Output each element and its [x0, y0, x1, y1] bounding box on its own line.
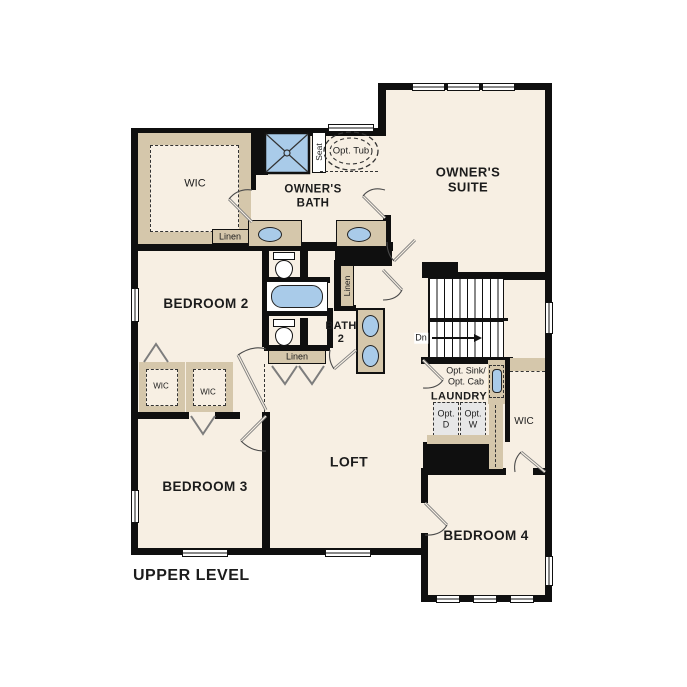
toilet — [273, 252, 295, 260]
linen-owners-label: Linen — [219, 232, 241, 243]
bedroom4-wic-shelf-edge — [510, 371, 545, 372]
door-bifold-hall-linen — [270, 364, 326, 388]
floor-bedroom4 — [421, 550, 550, 596]
owners-bath-label: OWNER'S BATH — [284, 183, 341, 210]
owners-wic-label: WIC — [184, 178, 205, 191]
wall — [421, 533, 428, 600]
linen-bath2-label: Linen — [342, 276, 352, 297]
wall — [131, 412, 189, 419]
wall — [545, 83, 552, 600]
door-bedroom4 — [421, 499, 453, 541]
opt-sink-cab-label: Opt. Sink/ Opt. Cab — [446, 365, 486, 386]
wall — [422, 262, 458, 278]
floor-owners-suite — [381, 86, 550, 134]
optional-dryer-label: Opt. D — [437, 408, 454, 429]
bedroom4-wic-label: WIC — [514, 416, 533, 428]
bedroom3-wic-label: WIC — [200, 387, 216, 396]
laundry-counter — [427, 435, 489, 444]
stairs-arrow-head — [474, 334, 482, 342]
owners-suite-label: OWNER'S SUITE — [436, 165, 500, 196]
wall — [300, 318, 308, 348]
bedroom4-label: BEDROOM 4 — [443, 528, 528, 544]
window — [447, 83, 480, 91]
door-bedroom2 — [232, 345, 270, 415]
linen-hall-label: Linen — [286, 352, 308, 363]
window — [482, 83, 515, 91]
loft-label: LOFT — [330, 454, 368, 471]
stairs-upper-flight — [428, 278, 504, 319]
door-bedroom4-wic — [511, 444, 549, 476]
wall — [421, 468, 506, 475]
wall — [131, 548, 428, 555]
plan-title: UPPER LEVEL — [133, 567, 250, 585]
window — [473, 595, 497, 603]
bedroom2-wic-label: WIC — [153, 381, 169, 390]
door-owners-suite — [383, 236, 419, 266]
door-owners-bath — [355, 184, 389, 224]
window — [131, 490, 139, 523]
sink — [362, 315, 379, 337]
bedroom4-wic-shelf — [510, 358, 545, 371]
optional-tub-label: Opt. Tub — [332, 145, 370, 156]
stairs-arrow — [432, 337, 476, 339]
door-bath2 — [326, 346, 360, 376]
bathtub — [271, 285, 323, 308]
door-laundry — [419, 356, 449, 392]
window — [131, 288, 139, 322]
window — [182, 549, 228, 557]
optional-washer-label: Opt. W — [464, 408, 481, 429]
door-bifold-bedroom2-wic — [142, 342, 170, 364]
shower — [264, 132, 310, 174]
sink — [347, 227, 371, 242]
window — [545, 556, 553, 586]
window — [510, 595, 534, 603]
door-bifold-bedroom3-wic — [189, 414, 217, 436]
tub-nook-dashed-edge — [320, 171, 378, 172]
floor-plan: WIC Linen Seat Opt. Tub OWNER'S BATH BED… — [0, 0, 687, 687]
bath2-label: BATH 2 — [325, 320, 356, 346]
sink — [258, 227, 282, 242]
door-bedroom3 — [236, 412, 270, 456]
wall — [423, 442, 490, 468]
window — [436, 595, 460, 603]
stairs-dn-label: Dn — [414, 333, 428, 344]
toilet — [273, 319, 295, 327]
optional-sink — [492, 369, 502, 393]
bedroom2-label: BEDROOM 2 — [163, 296, 248, 312]
bedroom3-label: BEDROOM 3 — [162, 479, 247, 495]
chase — [489, 403, 503, 469]
door-owners-wic — [220, 186, 256, 226]
window — [325, 549, 371, 557]
sink — [362, 345, 379, 367]
door-hall — [379, 264, 407, 304]
wall — [378, 83, 386, 136]
stairs-lower-flight — [428, 321, 504, 358]
window — [412, 83, 445, 91]
window — [545, 302, 553, 334]
chase-dashed-line — [495, 405, 496, 467]
